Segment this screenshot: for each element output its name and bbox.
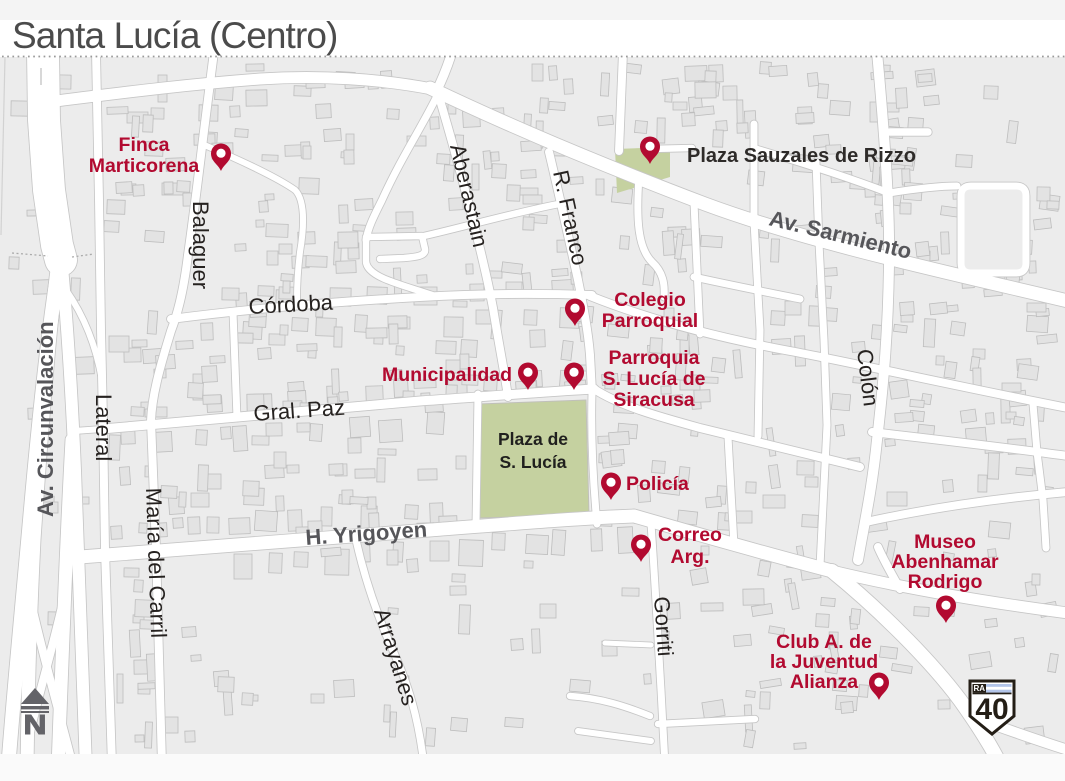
svg-text:N: N: [24, 709, 47, 740]
svg-text:Marticorena: Marticorena: [89, 155, 200, 177]
svg-text:Plaza de: Plaza de: [498, 429, 568, 449]
svg-text:Santa Lucía (Centro): Santa Lucía (Centro): [12, 15, 337, 56]
svg-text:Finca: Finca: [119, 134, 170, 156]
svg-text:Córdoba: Córdoba: [248, 290, 334, 319]
svg-text:RA: RA: [974, 684, 986, 693]
svg-text:Municipalidad: Municipalidad: [382, 364, 512, 386]
svg-text:Arg.: Arg.: [671, 546, 710, 568]
svg-text:Parroquial: Parroquial: [602, 310, 698, 332]
svg-text:la Juventud: la Juventud: [770, 651, 878, 673]
svg-text:Correo: Correo: [658, 524, 722, 546]
svg-text:Siracusa: Siracusa: [613, 389, 694, 411]
svg-text:Parroquia: Parroquia: [608, 347, 699, 369]
svg-text:María del Carril: María del Carril: [141, 487, 171, 638]
svg-text:Plaza Sauzales de Rizzo: Plaza Sauzales de Rizzo: [687, 145, 916, 167]
svg-text:S. Lucía: S. Lucía: [499, 452, 566, 472]
svg-text:Av. Circunvalación: Av. Circunvalación: [33, 321, 58, 517]
svg-text:Abenhamar: Abenhamar: [891, 551, 999, 573]
svg-text:Alianza: Alianza: [790, 671, 858, 693]
svg-text:Lateral: Lateral: [91, 394, 116, 461]
svg-text:Policía: Policía: [626, 473, 689, 495]
svg-text:40: 40: [975, 693, 1008, 726]
svg-text:Gorriti: Gorriti: [649, 596, 678, 657]
svg-text:Balaguer: Balaguer: [188, 201, 213, 289]
svg-text:Rodrigo: Rodrigo: [908, 571, 983, 593]
svg-text:Museo: Museo: [914, 531, 976, 553]
svg-text:Colegio: Colegio: [614, 289, 686, 311]
svg-text:S. Lucía de: S. Lucía de: [603, 368, 706, 390]
svg-text:Club A. de: Club A. de: [776, 631, 872, 653]
